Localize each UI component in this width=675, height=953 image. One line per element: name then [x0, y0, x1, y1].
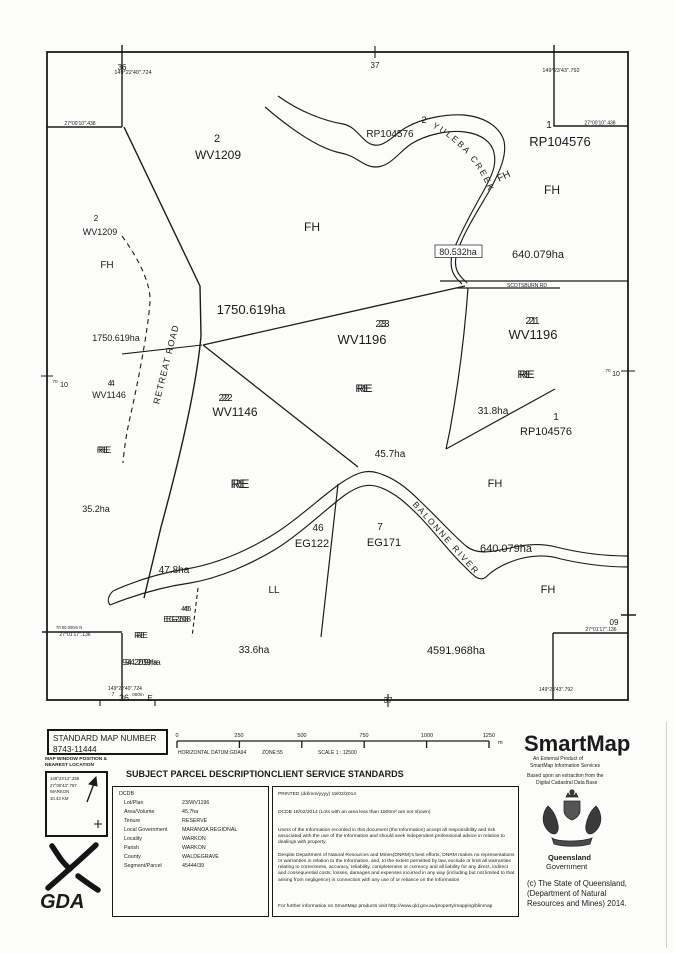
- tenure-re-center-overprint: RE: [357, 383, 372, 395]
- lot-45-eg208-overprint: 45: [184, 606, 192, 613]
- lot-23-wv1196-overprint: 23: [378, 319, 390, 330]
- area-35-2: 35.2ha: [82, 504, 110, 514]
- crest-right-supporter: [586, 806, 601, 834]
- scale-bar: 0 250 500 750 1000 1250 m HORIZONTAL DAT…: [175, 733, 503, 756]
- area-80-532: 80.532ha: [439, 247, 477, 257]
- tenure-ll: LL: [268, 585, 280, 596]
- area-31-8: 31.8ha: [478, 406, 509, 417]
- coord-top-left-lon: 149°22'40".724: [114, 70, 151, 76]
- lot-21-wv1196-overprint: 21: [528, 316, 540, 327]
- tenure-re-west-overprint: RE: [99, 445, 112, 455]
- easting-prefix: 7: [112, 692, 115, 698]
- coord-bottom-left-lat: 27°01'17".136: [59, 632, 90, 638]
- gda-logo: GDA: [40, 845, 98, 913]
- balonne-river-label: BALONNE RIVER: [411, 499, 482, 576]
- grid-left-70: 70: [52, 379, 58, 384]
- coord-bottom-right-lat: 27°01'17".136: [585, 627, 616, 633]
- plan-wv1209: WV1209: [195, 148, 241, 162]
- tenure-fh-west: FH: [100, 260, 113, 271]
- grid-label-37-top: 37: [371, 61, 380, 70]
- tenure-fh-mid-east: FH: [488, 478, 503, 490]
- area-1750-big: 1750.619ha: [217, 302, 286, 317]
- area-640-bottom: 640.079ha: [480, 543, 533, 555]
- balonne-river-north-bank: [113, 471, 628, 591]
- coord-top-right-lat: 27°00'10".438: [584, 121, 615, 127]
- map-canvas: 36 37 37 09 149°22'40".724 149°23'43".79…: [0, 0, 675, 953]
- area-47-8: 47.8ha: [159, 565, 190, 576]
- plan-wv1196-east: WV1196: [509, 327, 558, 342]
- nw-corner-boundary: [47, 45, 122, 127]
- area-33-6: 33.6ha: [239, 645, 270, 656]
- easting-main: 36: [119, 693, 129, 703]
- lot-1-rp104576-mid: 1: [553, 412, 559, 423]
- plan-wv1146-center: WV1146: [212, 405, 257, 419]
- area-4591-968: 4591.968ha: [427, 645, 486, 657]
- grid-right-10: 10: [612, 371, 620, 378]
- north-arrow-icon: [87, 777, 102, 828]
- scale-tick-1000: 1000: [421, 733, 433, 739]
- lot-4-wv1146-overprint: 4: [110, 379, 115, 388]
- tenure-re-east-overprint: RE: [519, 369, 534, 381]
- boundary-east-of-wv1196: [446, 288, 468, 449]
- boundary-31-8ha: [446, 389, 555, 449]
- area-1750-west: 1750.619ha: [92, 333, 140, 343]
- plan-wv1146-west: WV1146: [92, 390, 126, 400]
- grid-label-09-right: 09: [610, 618, 619, 627]
- lot-1-rp104576-ne: 1: [546, 120, 552, 131]
- scale-tick-0: 0: [175, 733, 178, 739]
- tenure-fh-creek: FH: [496, 169, 513, 185]
- scale-tick-500: 500: [297, 733, 306, 739]
- crest-shield: [564, 801, 580, 820]
- ne-corner-boundary: [554, 45, 628, 126]
- retreat-road-west-dashed-boundary: [122, 236, 150, 463]
- tenure-fh-center: FH: [304, 220, 320, 234]
- qld-coat-of-arms: [543, 790, 601, 846]
- area-640-top: 640.079ha: [512, 249, 565, 261]
- grid-label-37-bottom: 37: [384, 696, 393, 705]
- scale-zone: ZONE:55: [262, 750, 283, 756]
- scale-bar-line: [177, 741, 489, 748]
- scotsburn-rd-label: SCOTSBURN RD: [507, 283, 547, 289]
- scale-tick-750: 750: [359, 733, 368, 739]
- area-94-209-overprint: 94.209ha: [125, 657, 161, 667]
- plan-rp104576-ne: RP104576: [529, 134, 590, 149]
- lot-46-eg122: 46: [312, 523, 324, 534]
- lot-22-wv1146-overprint: 22: [221, 393, 233, 404]
- boundary-leader-1750: [122, 345, 202, 354]
- scale-datum: HORIZONTAL DATUM:GDA94: [178, 750, 246, 756]
- retreat-road-label: RETREAT ROAD: [151, 323, 180, 405]
- coord-northing-label: 70 00 000m N: [56, 625, 82, 630]
- coord-bottom-right-lon: 149°23'43".792: [539, 687, 573, 693]
- scale-unit: m: [498, 740, 503, 746]
- scale-tick-250: 250: [234, 733, 243, 739]
- easting-direction: E: [147, 694, 152, 703]
- crest-top-orb: [570, 790, 574, 794]
- boundary-eg208-dashed: [192, 588, 198, 637]
- easting-suffix: 000m: [132, 692, 144, 697]
- plan-wv1209-west: WV1209: [83, 227, 118, 237]
- plan-rp104576-top: RP104576: [366, 129, 414, 140]
- lot-2-wv1209: 2: [214, 133, 220, 145]
- balonne-river-west-end: [108, 591, 113, 605]
- tenure-re-center-big-overprint: RE: [233, 477, 250, 491]
- north-arrow-head: [89, 777, 97, 786]
- plan-eg122: EG122: [295, 538, 329, 550]
- crosshair-icon: [94, 820, 102, 828]
- coord-top-left-lat: 27°00'10".438: [64, 121, 95, 127]
- crest-base-scroll: [552, 838, 592, 846]
- plan-eg208-overprint: EG208: [166, 615, 191, 624]
- grid-right-70: 70: [605, 368, 611, 373]
- plan-eg171: EG171: [367, 537, 401, 549]
- plan-rp104576-mid: RP104576: [520, 426, 572, 438]
- plan-wv1196-center: WV1196: [338, 332, 387, 347]
- area-45-7: 45.7ha: [375, 449, 406, 460]
- tenure-fh-southeast: FH: [541, 584, 556, 596]
- lot-2-wv1209-west: 2: [94, 214, 99, 223]
- gda-logo-text: GDA: [40, 891, 84, 913]
- grid-left-10: 10: [60, 382, 68, 389]
- tenure-fh-northeast: FH: [544, 183, 560, 197]
- yuleba-creek-label: YULEBA CREEK: [431, 120, 496, 193]
- smartmap-sheet: STANDARD MAP NUMBER 8743-11444 MAP WINDO…: [0, 0, 675, 953]
- lot-7-eg171: 7: [377, 522, 383, 533]
- lot-2-rp104576: 2: [421, 115, 426, 125]
- scale-tick-1250: 1250: [483, 733, 495, 739]
- tenure-re-south-overprint: RE: [136, 630, 148, 640]
- scale-ratio: SCALE 1 : 12500: [318, 750, 357, 756]
- crest-left-supporter: [543, 806, 558, 834]
- coord-top-right-lon: 149°23'43".792: [542, 68, 579, 74]
